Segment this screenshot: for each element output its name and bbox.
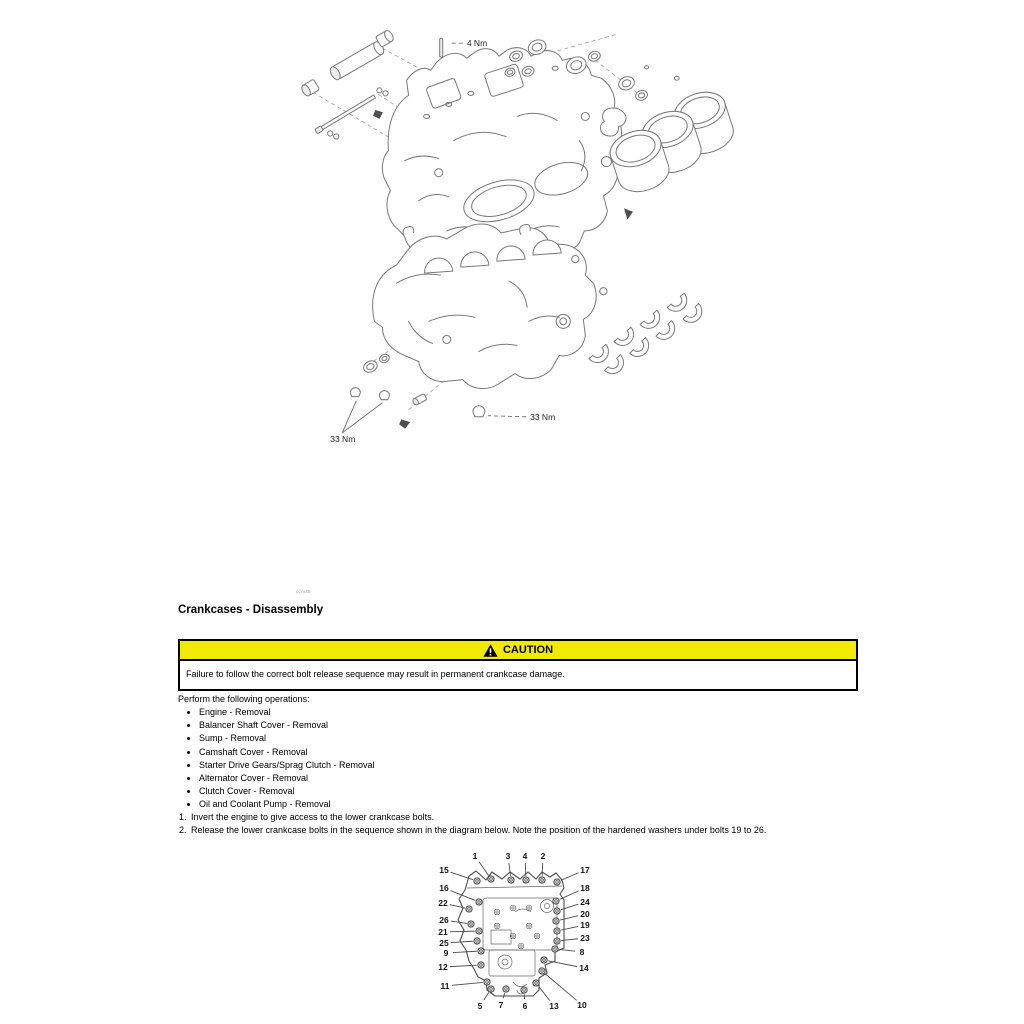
bolt-head — [553, 918, 559, 924]
bolt-number-label: 22 — [438, 898, 448, 908]
bolt-head — [552, 946, 558, 952]
bolt-number-label: 21 — [438, 927, 448, 937]
bolt-number-label: 8 — [580, 947, 585, 957]
operation-item: Alternator Cover - Removal — [199, 772, 375, 785]
exploded-crankcase-diagram: 4 Nm33 Nm33 Nm — [278, 20, 740, 462]
caution-box: CAUTION Failure to follow the correct bo… — [178, 639, 858, 691]
step-number: 1. — [179, 811, 191, 824]
bolt-head — [554, 879, 560, 885]
bolt-number-label: 25 — [439, 938, 449, 948]
caution-text: Failure to follow the correct bolt relea… — [180, 661, 856, 689]
bolt-head — [541, 957, 547, 963]
bolt-head — [554, 928, 560, 934]
step-text: Release the lower crankcase bolts in the… — [191, 824, 766, 837]
domed-plug-33nm — [473, 406, 485, 417]
bolt-number-label: 23 — [580, 933, 590, 943]
bolt-head — [488, 986, 494, 992]
operations-list: Engine - RemovalBalancer Shaft Cover - R… — [187, 706, 375, 812]
step-number: 2. — [179, 824, 191, 837]
bolt-number-label: 24 — [580, 897, 590, 907]
bolt-number-label: 9 — [444, 948, 449, 958]
exploded-diagram-svg: 4 Nm33 Nm33 Nm — [278, 20, 740, 462]
bolt-leader-line — [484, 993, 489, 1001]
bolt-number-label: 13 — [549, 1001, 559, 1011]
clip-part — [625, 209, 633, 219]
bolt-head — [553, 898, 559, 904]
caution-label: CAUTION — [503, 644, 553, 656]
upper-crankcase — [382, 48, 621, 264]
bolt-head — [488, 876, 494, 882]
bolt-number-label: 5 — [478, 1001, 483, 1011]
bolt-head — [484, 979, 490, 985]
bolt-head — [554, 938, 560, 944]
caution-header: CAUTION — [180, 641, 856, 661]
lower-crankcase-underside — [458, 871, 564, 996]
bolt-head — [476, 899, 482, 905]
bolt-number-label: 16 — [439, 883, 449, 893]
bolt-head — [539, 968, 545, 974]
bolt-leader-line — [545, 974, 576, 1001]
bolt-number-label: 1 — [473, 851, 478, 861]
torque-label: 33 Nm — [330, 434, 355, 444]
bolt-leader-line — [479, 862, 489, 876]
bolt-head — [474, 878, 480, 884]
bolt-leader-line — [559, 949, 575, 951]
operation-item: Sump - Removal — [199, 732, 375, 745]
bolt-number-label: 3 — [506, 851, 511, 861]
bolt-leader-line — [560, 891, 579, 899]
bolt-number-label: 10 — [577, 1000, 587, 1010]
bolt-head — [474, 938, 480, 944]
bolt-number-label: 20 — [580, 909, 590, 919]
bolt-head — [503, 986, 509, 992]
operation-item: Camshaft Cover - Removal — [199, 746, 375, 759]
bolt-head — [533, 980, 539, 986]
bracket-part — [600, 108, 626, 136]
step-item: 2.Release the lower crankcase bolts in t… — [179, 824, 869, 837]
bolt-head — [476, 928, 482, 934]
operation-item: Clutch Cover - Removal — [199, 785, 375, 798]
bolt-number-label: 14 — [579, 963, 589, 973]
cylinder-liners — [605, 86, 738, 198]
bolt-number-label: 15 — [439, 865, 449, 875]
lower-crankcase — [373, 224, 596, 389]
bolt-number-label: 7 — [499, 1000, 504, 1010]
bolt-head — [466, 906, 472, 912]
bolt-head — [539, 877, 545, 883]
bolt-leader-line — [539, 986, 550, 1000]
ball-bearing — [601, 157, 611, 167]
bolt-sequence-diagram: 1342151716182224262021192523981214111057… — [428, 842, 610, 1022]
bolt-head — [508, 877, 514, 883]
torque-leader-line — [342, 403, 382, 433]
intro-text: Perform the following operations: — [178, 694, 310, 704]
oil-pipe — [315, 88, 388, 139]
bolt-number-label: 11 — [441, 981, 450, 991]
bolt-head — [468, 921, 474, 927]
bolt-head — [478, 948, 484, 954]
warning-triangle-icon — [483, 644, 498, 657]
bolt-diagram-svg: 1342151716182224262021192523981214111057… — [428, 842, 610, 1022]
bearing-shells — [589, 288, 706, 379]
steps-list: 1.Invert the engine to give access to th… — [179, 811, 869, 837]
bolt-number-label: 4 — [523, 851, 528, 861]
step-item: 1.Invert the engine to give access to th… — [179, 811, 869, 824]
bolt-head — [478, 962, 484, 968]
bolt-leader-line — [542, 863, 543, 876]
operation-item: Engine - Removal — [199, 706, 375, 719]
bolt-number-label: 6 — [523, 1001, 528, 1011]
section-title: Crankcases - Disassembly — [178, 604, 323, 616]
torque-label: 4 Nm — [467, 38, 487, 48]
operation-item: Starter Drive Gears/Sprag Clutch - Remov… — [199, 759, 375, 772]
bolt-number-label: 18 — [580, 883, 590, 893]
torque-label: 33 Nm — [530, 412, 555, 422]
step-text: Invert the engine to give access to the … — [191, 811, 434, 824]
bolt-leader-line — [548, 961, 577, 967]
bolt-head — [521, 987, 527, 993]
bolt-number-label: 17 — [580, 865, 590, 875]
torque-leader-line — [488, 416, 526, 417]
bolt-number-label: 26 — [439, 915, 449, 925]
manual-page: 4 Nm33 Nm33 Nm ccni45 Crankcases - Disas… — [0, 0, 1024, 1024]
operation-item: Oil and Coolant Pump - Removal — [199, 798, 375, 811]
bolt-number-label: 12 — [438, 962, 448, 972]
dowel-pin-4nm — [440, 38, 443, 57]
bolt-leader-line — [452, 982, 483, 985]
bolt-head — [554, 908, 560, 914]
operation-item: Balancer Shaft Cover - Removal — [199, 719, 375, 732]
bolt-leader-line — [561, 873, 579, 881]
bolt-number-label: 19 — [580, 920, 590, 930]
dowel-sleeve — [300, 29, 395, 97]
bolt-number-label: 2 — [541, 851, 546, 861]
figure-ref-code: ccni45 — [296, 589, 311, 594]
bolt-leader-line — [525, 863, 526, 876]
bolt-head — [523, 877, 529, 883]
